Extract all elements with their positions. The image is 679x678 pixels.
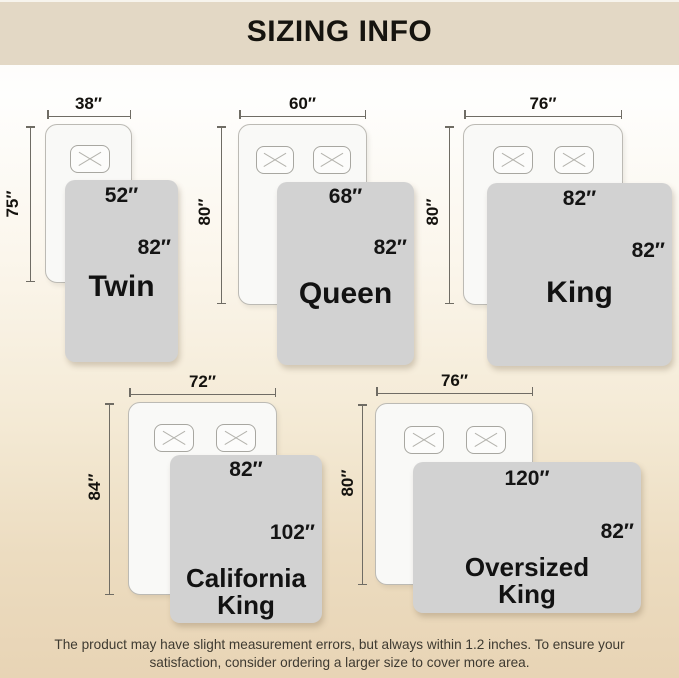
- width-measure-line: [130, 394, 275, 395]
- blanket: 120″ 82″ Oversized King: [413, 462, 641, 613]
- footer-note-line1: The product may have slight measurement …: [0, 636, 679, 654]
- bed-height-label: 84″: [85, 465, 105, 509]
- bed-height-label: 80″: [423, 190, 443, 234]
- pillow-icon: [554, 146, 594, 174]
- size-name: Twin: [65, 271, 178, 303]
- blanket: 52″ 82″ Twin: [65, 180, 178, 362]
- blanket-width-label: 82″: [487, 187, 672, 211]
- page-title: SIZING INFO: [247, 15, 433, 49]
- blanket-width-label: 68″: [277, 185, 414, 209]
- width-measure-line: [48, 116, 130, 117]
- width-measure-line: [465, 116, 621, 117]
- bed-width-label: 76″: [463, 94, 623, 114]
- height-measure-line: [109, 404, 110, 594]
- size-name: Oversized King: [413, 554, 641, 609]
- blanket-width-label: 120″: [413, 467, 641, 491]
- height-measure-line: [362, 405, 363, 584]
- pillow-icon: [313, 146, 351, 174]
- blanket-height-label: 82″: [374, 236, 407, 260]
- bed-height-label: 75″: [3, 182, 23, 226]
- pillow-icon: [154, 424, 194, 452]
- pillow-icon: [404, 426, 444, 454]
- header-bar: SIZING INFO: [0, 0, 679, 65]
- blanket-width-label: 82″: [170, 458, 322, 482]
- size-name: King: [487, 277, 672, 309]
- width-measure-line: [240, 116, 365, 117]
- blanket: 68″ 82″ Queen: [277, 182, 414, 365]
- size-name: Queen: [277, 278, 414, 310]
- pillow-icon: [466, 426, 506, 454]
- pillow-icon: [493, 146, 533, 174]
- size-name: California King: [170, 565, 322, 620]
- blanket-height-label: 102″: [270, 521, 315, 545]
- pillow-icon: [70, 145, 110, 173]
- height-measure-line: [30, 127, 31, 281]
- blanket: 82″ 102″ California King: [170, 455, 322, 623]
- bed-width-label: 72″: [128, 372, 277, 392]
- footer-note-line2: satisfaction, consider ordering a larger…: [0, 654, 679, 672]
- width-measure-line: [377, 393, 532, 394]
- blanket: 82″ 82″ King: [487, 183, 672, 366]
- pillow-icon: [256, 146, 294, 174]
- blanket-height-label: 82″: [601, 520, 634, 544]
- sizing-info-infographic: SIZING INFO 38″ 75″ 52″ 82″ Twin 60″ 80″…: [0, 0, 679, 678]
- blanket-width-label: 52″: [65, 184, 178, 208]
- footer-note: The product may have slight measurement …: [0, 636, 679, 672]
- blanket-height-label: 82″: [138, 236, 171, 260]
- bed-width-label: 38″: [45, 94, 132, 114]
- height-measure-line: [221, 127, 222, 303]
- bed-width-label: 60″: [238, 94, 367, 114]
- bed-height-label: 80″: [338, 461, 358, 505]
- pillow-icon: [216, 424, 256, 452]
- blanket-height-label: 82″: [632, 239, 665, 263]
- height-measure-line: [449, 127, 450, 303]
- bed-width-label: 76″: [375, 371, 534, 391]
- bed-height-label: 80″: [195, 190, 215, 234]
